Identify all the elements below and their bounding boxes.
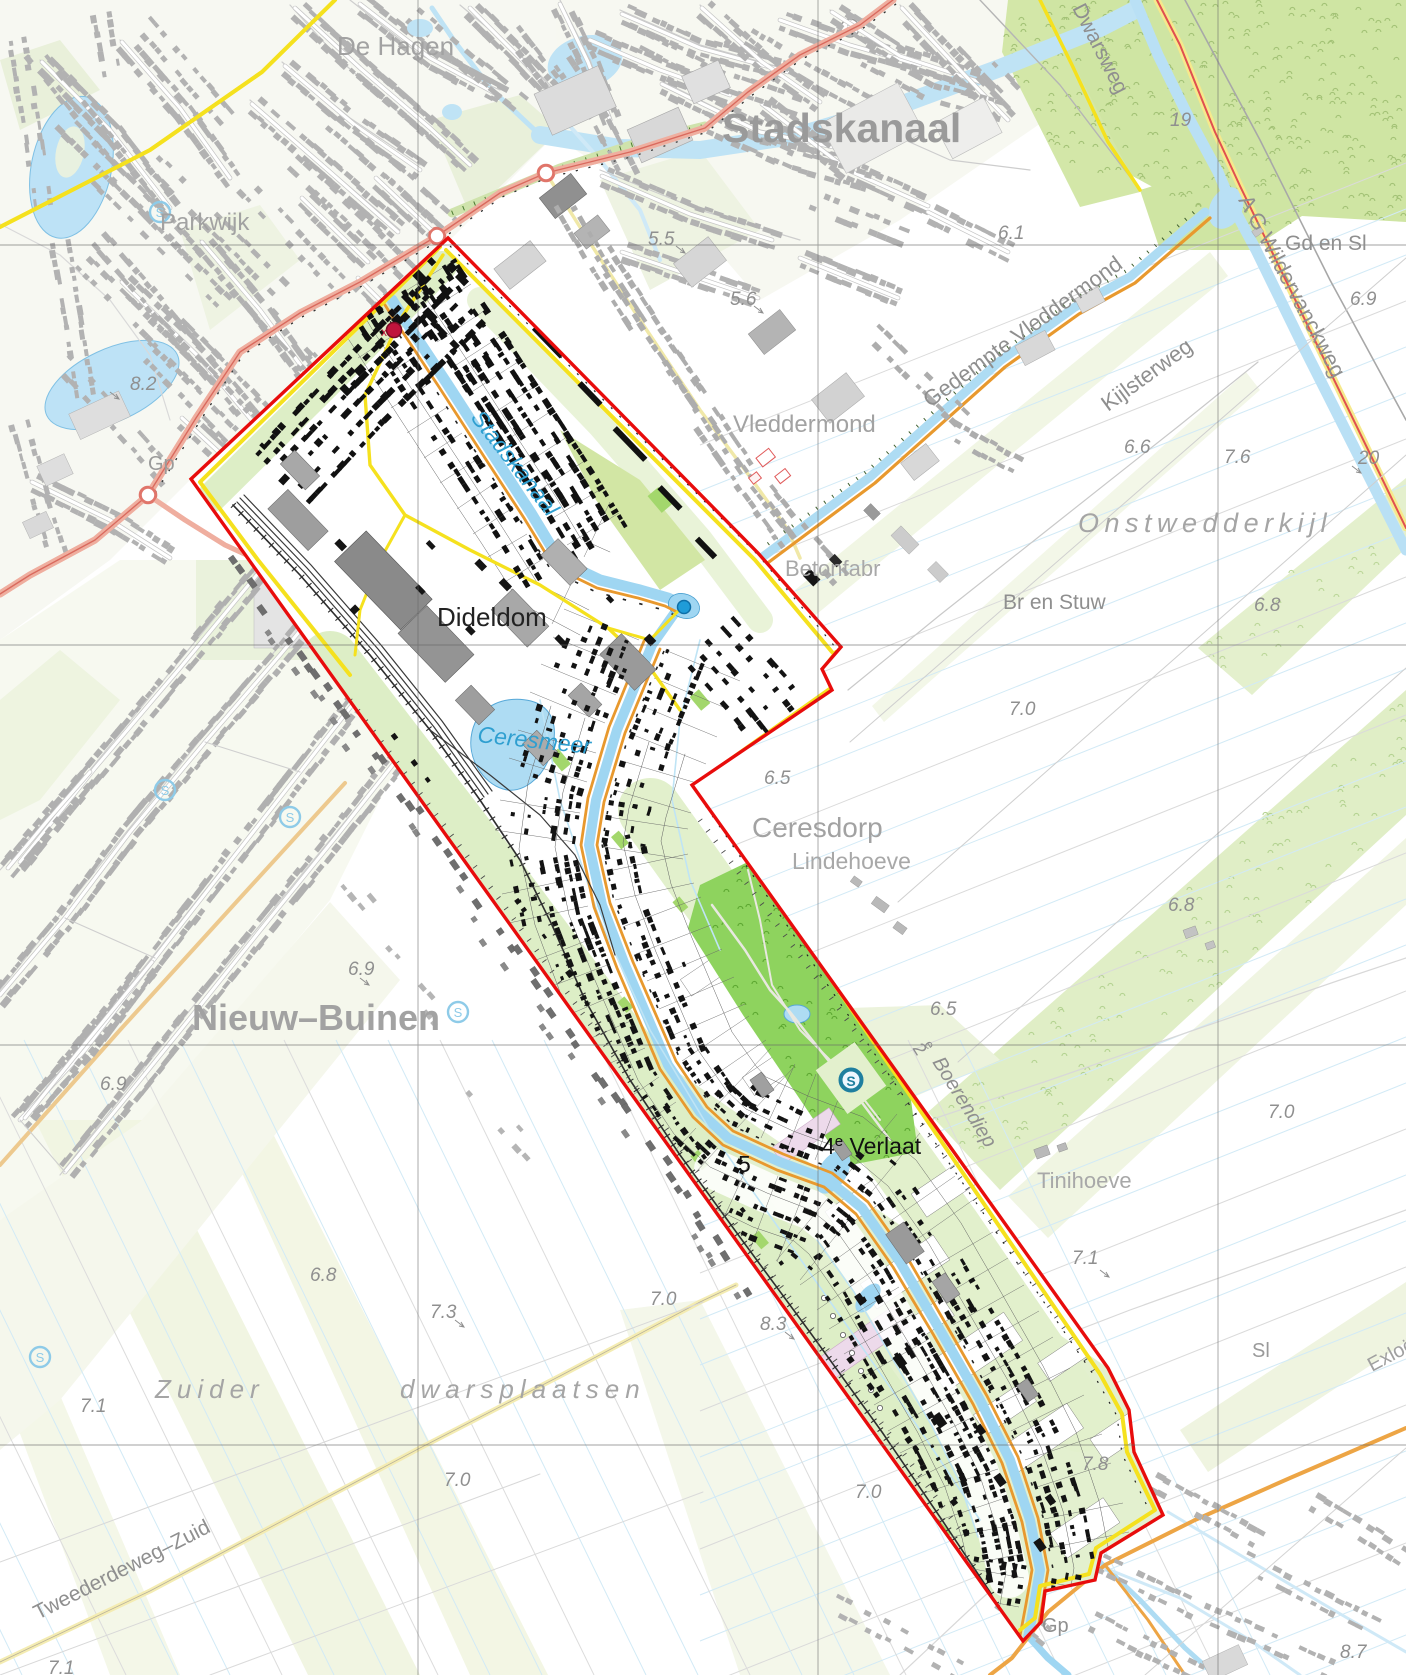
svg-text:19: 19 bbox=[1170, 110, 1192, 131]
svg-text:6.9: 6.9 bbox=[100, 1074, 127, 1095]
svg-text:7.1: 7.1 bbox=[1072, 1248, 1098, 1269]
svg-text:6.5: 6.5 bbox=[930, 999, 957, 1020]
svg-text:7.1: 7.1 bbox=[48, 1658, 74, 1675]
svg-text:6.9: 6.9 bbox=[348, 959, 375, 980]
svg-text:7.1: 7.1 bbox=[80, 1396, 106, 1417]
svg-text:7.8: 7.8 bbox=[1082, 1454, 1109, 1475]
svg-text:Gp: Gp bbox=[1042, 1615, 1069, 1637]
svg-text:6.8: 6.8 bbox=[1168, 895, 1195, 916]
svg-text:6.8: 6.8 bbox=[1254, 595, 1281, 616]
svg-text:Betonfabr: Betonfabr bbox=[785, 556, 880, 581]
svg-text:Zuider: Zuider bbox=[154, 1374, 265, 1404]
svg-text:x: x bbox=[381, 325, 387, 339]
svg-text:5: 5 bbox=[738, 1151, 751, 1177]
svg-text:7.6: 7.6 bbox=[1224, 447, 1251, 468]
svg-text:S: S bbox=[36, 1350, 45, 1365]
svg-text:Sl: Sl bbox=[1252, 1340, 1270, 1362]
svg-text:20: 20 bbox=[1357, 448, 1380, 469]
svg-text:Br en Stuw: Br en Stuw bbox=[1003, 591, 1107, 614]
svg-text:Tinihoeve: Tinihoeve bbox=[1037, 1168, 1132, 1193]
svg-text:Onstwedderkijl: Onstwedderkijl bbox=[1078, 508, 1332, 538]
svg-text:6.1: 6.1 bbox=[998, 223, 1024, 244]
svg-text:Nieuw–Buinen: Nieuw–Buinen bbox=[192, 997, 440, 1038]
svg-text:7.0: 7.0 bbox=[650, 1289, 677, 1310]
svg-text:Vleddermond: Vleddermond bbox=[733, 411, 876, 438]
svg-text:7.0: 7.0 bbox=[1009, 699, 1036, 720]
svg-text:6.8: 6.8 bbox=[310, 1265, 337, 1286]
svg-text:7.0: 7.0 bbox=[1268, 1102, 1295, 1123]
svg-text:Ceresdorp: Ceresdorp bbox=[752, 812, 883, 843]
svg-text:Gd en Sl: Gd en Sl bbox=[1285, 232, 1367, 255]
svg-text:S: S bbox=[286, 810, 295, 825]
svg-text:8.7: 8.7 bbox=[1340, 1642, 1368, 1663]
svg-text:6.9: 6.9 bbox=[1350, 289, 1377, 310]
svg-text:Gp: Gp bbox=[148, 453, 175, 475]
svg-text:8.2: 8.2 bbox=[130, 374, 157, 395]
svg-text:dwarsplaatsen: dwarsplaatsen bbox=[400, 1374, 646, 1404]
svg-text:6.6: 6.6 bbox=[1124, 437, 1151, 458]
svg-text:S: S bbox=[846, 1073, 855, 1089]
svg-text:Dideldom: Dideldom bbox=[437, 602, 547, 632]
svg-text:Stadskanaal: Stadskanaal bbox=[722, 105, 961, 151]
svg-text:7.3: 7.3 bbox=[430, 1302, 457, 1323]
svg-text:S: S bbox=[161, 783, 170, 798]
svg-text:S: S bbox=[454, 1005, 463, 1020]
svg-text:Lindehoeve: Lindehoeve bbox=[792, 848, 911, 874]
svg-text:De Hagen: De Hagen bbox=[337, 31, 454, 61]
svg-text:7.0: 7.0 bbox=[855, 1482, 882, 1503]
svg-text:5.6: 5.6 bbox=[730, 289, 757, 310]
svg-text:Parkwijk: Parkwijk bbox=[160, 209, 250, 236]
svg-text:6.5: 6.5 bbox=[764, 768, 791, 789]
svg-text:7.0: 7.0 bbox=[444, 1470, 471, 1491]
svg-text:8.3: 8.3 bbox=[760, 1314, 787, 1335]
svg-text:5.5: 5.5 bbox=[648, 229, 675, 250]
